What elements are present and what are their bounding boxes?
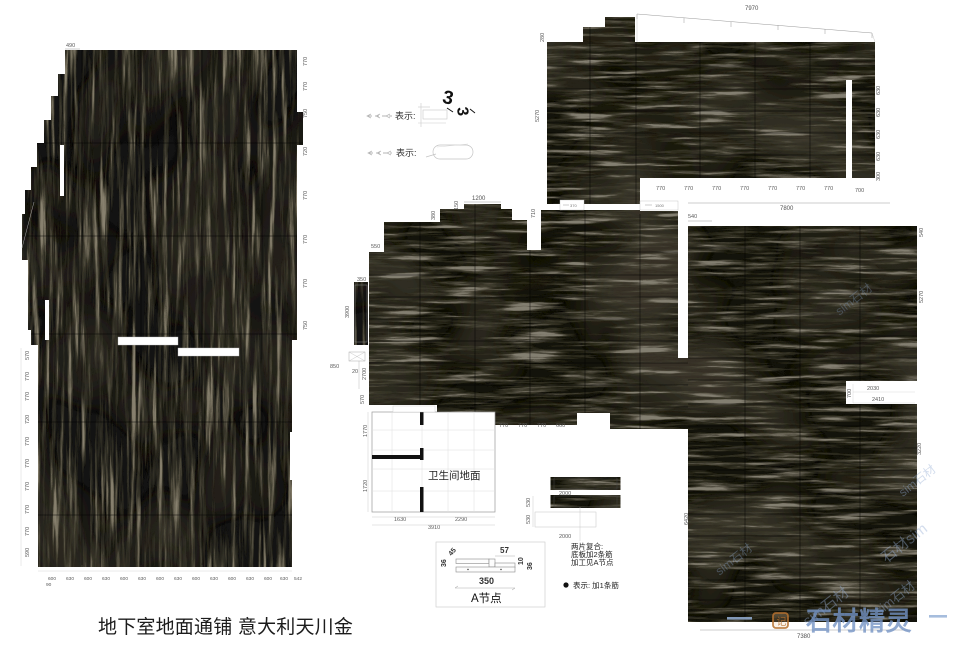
svg-text:770: 770 xyxy=(25,372,31,381)
svg-text:630: 630 xyxy=(876,130,882,139)
svg-text:2000: 2000 xyxy=(559,534,571,540)
svg-text:表示:: 表示: xyxy=(396,147,417,158)
svg-text:770: 770 xyxy=(25,505,31,514)
svg-text:3220: 3220 xyxy=(917,443,923,455)
svg-text:7800: 7800 xyxy=(780,206,794,212)
svg-text:石材精灵: 石材精灵 xyxy=(805,606,912,636)
svg-text:770: 770 xyxy=(25,482,31,491)
svg-text:370: 370 xyxy=(570,203,577,208)
svg-text:57: 57 xyxy=(500,546,509,555)
svg-text:6420: 6420 xyxy=(684,513,690,525)
svg-text:770: 770 xyxy=(796,186,805,192)
svg-text:630: 630 xyxy=(210,576,218,582)
svg-text:2030: 2030 xyxy=(867,386,879,392)
svg-text:20: 20 xyxy=(352,369,358,375)
svg-text:300: 300 xyxy=(876,172,882,181)
svg-text:770: 770 xyxy=(740,186,749,192)
svg-text:3910: 3910 xyxy=(428,525,440,531)
svg-text:1500: 1500 xyxy=(655,203,665,208)
svg-text:770: 770 xyxy=(656,186,665,192)
svg-text:710: 710 xyxy=(531,209,537,218)
svg-text:600: 600 xyxy=(264,576,272,582)
svg-text:630: 630 xyxy=(174,576,182,582)
svg-text:600: 600 xyxy=(156,576,164,582)
svg-text:630: 630 xyxy=(138,576,146,582)
svg-text:770: 770 xyxy=(518,423,527,429)
svg-text:770: 770 xyxy=(303,57,309,66)
svg-text:600: 600 xyxy=(48,576,56,582)
svg-text:36: 36 xyxy=(441,559,448,567)
svg-text:770: 770 xyxy=(824,186,833,192)
svg-text:770: 770 xyxy=(537,423,546,429)
svg-text:10: 10 xyxy=(518,557,525,565)
svg-text:720: 720 xyxy=(25,415,31,424)
svg-text:540: 540 xyxy=(688,214,697,220)
svg-text:1200: 1200 xyxy=(472,196,486,202)
svg-text:770: 770 xyxy=(684,186,693,192)
svg-text:770: 770 xyxy=(303,191,309,200)
svg-text:590: 590 xyxy=(25,548,31,557)
svg-text:600: 600 xyxy=(192,576,200,582)
svg-text:加工见A节点: 加工见A节点 xyxy=(571,557,614,567)
svg-text:150: 150 xyxy=(454,201,460,210)
svg-text:530: 530 xyxy=(526,498,532,507)
svg-text:630: 630 xyxy=(246,576,254,582)
svg-text:2700: 2700 xyxy=(362,368,368,380)
svg-text:540: 540 xyxy=(919,228,925,237)
svg-text:630: 630 xyxy=(280,576,288,582)
svg-text:3900: 3900 xyxy=(345,306,351,318)
svg-text:5270: 5270 xyxy=(919,291,925,303)
svg-text:630: 630 xyxy=(102,576,110,582)
svg-text:5270: 5270 xyxy=(535,110,541,122)
svg-text:770: 770 xyxy=(25,392,31,401)
svg-text:750: 750 xyxy=(303,109,309,118)
svg-text:770: 770 xyxy=(303,279,309,288)
svg-text:720: 720 xyxy=(303,147,309,156)
svg-text:7970: 7970 xyxy=(745,6,759,12)
svg-text:770: 770 xyxy=(25,459,31,468)
svg-text:36: 36 xyxy=(527,562,534,570)
svg-text:570: 570 xyxy=(360,395,366,404)
svg-text:570: 570 xyxy=(25,351,31,360)
svg-text:770: 770 xyxy=(25,527,31,536)
svg-text:600: 600 xyxy=(84,576,92,582)
svg-text:490: 490 xyxy=(66,43,75,49)
svg-text:表示: 加1条筋: 表示: 加1条筋 xyxy=(573,580,619,590)
svg-text:2410: 2410 xyxy=(872,397,884,403)
svg-text:350: 350 xyxy=(479,576,494,586)
svg-text:770: 770 xyxy=(499,423,508,429)
svg-text:表示:: 表示: xyxy=(395,110,416,121)
svg-text:530: 530 xyxy=(526,515,532,524)
svg-text:542: 542 xyxy=(294,576,302,582)
svg-text:90: 90 xyxy=(46,582,52,588)
svg-text:350: 350 xyxy=(357,277,366,283)
svg-text:630: 630 xyxy=(876,152,882,161)
svg-text:地下室地面通铺 意大利天川金: 地下室地面通铺 意大利天川金 xyxy=(98,616,353,638)
svg-text:770: 770 xyxy=(712,186,721,192)
svg-text:卫生间地面: 卫生间地面 xyxy=(428,469,481,482)
svg-text:600: 600 xyxy=(120,576,128,582)
svg-text:770: 770 xyxy=(303,235,309,244)
svg-text:550: 550 xyxy=(371,244,380,250)
svg-text:630: 630 xyxy=(66,576,74,582)
svg-text:A节点: A节点 xyxy=(471,592,502,605)
svg-text:750: 750 xyxy=(303,321,309,330)
svg-text:280: 280 xyxy=(540,33,546,42)
svg-text:1630: 1630 xyxy=(394,517,406,523)
svg-text:2290: 2290 xyxy=(455,517,467,523)
svg-text:600: 600 xyxy=(228,576,236,582)
svg-text:630: 630 xyxy=(876,108,882,117)
svg-text:770: 770 xyxy=(768,186,777,192)
svg-text:380: 380 xyxy=(431,211,437,220)
svg-text:770: 770 xyxy=(25,437,31,446)
svg-text:700: 700 xyxy=(847,389,853,398)
svg-text:630: 630 xyxy=(876,86,882,95)
svg-text:记: 记 xyxy=(777,616,787,628)
svg-text:660: 660 xyxy=(556,423,565,429)
svg-text:850: 850 xyxy=(330,364,339,370)
svg-text:770: 770 xyxy=(303,82,309,91)
svg-text:700: 700 xyxy=(855,188,864,194)
